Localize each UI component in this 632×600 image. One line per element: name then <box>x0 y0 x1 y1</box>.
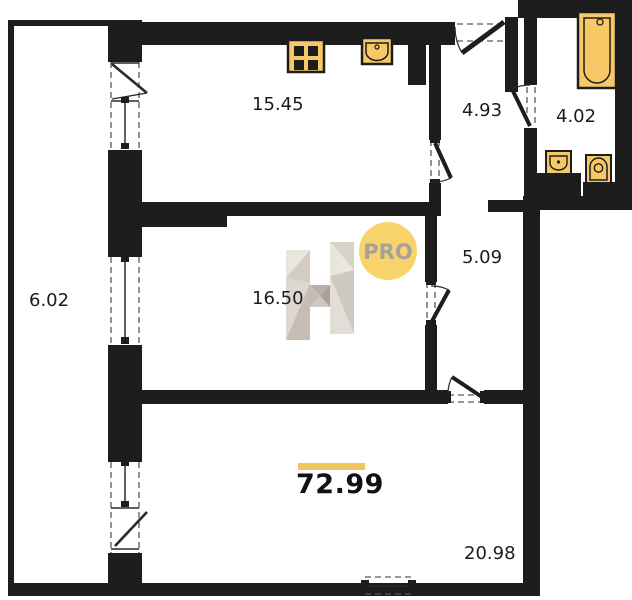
window-icon-middle <box>121 255 129 344</box>
kitchen-door-icon <box>430 136 451 186</box>
stove-icon <box>288 40 324 72</box>
pro-badge: PRO <box>359 222 417 280</box>
room-door-icon <box>426 278 449 327</box>
room-label-kitchen: 15.45 <box>252 96 304 114</box>
pro-badge-label: PRO <box>363 240 412 264</box>
bathtub-icon <box>578 12 616 88</box>
floor-plan: PRO 15.45 4.93 4.02 6.02 16.50 5.09 20.9… <box>0 0 632 600</box>
window-icon-top <box>111 63 147 149</box>
room-label-room: 16.50 <box>252 290 304 308</box>
living-room-door-icon <box>442 377 489 403</box>
room-label-corridor: 5.09 <box>462 249 502 267</box>
entrance-door-icon <box>455 22 504 53</box>
washbasin-icon <box>546 151 571 174</box>
floor-plan-drawing: PRO <box>0 0 632 600</box>
window-icons <box>111 63 416 591</box>
sink-icon <box>362 38 392 64</box>
room-label-balcony: 6.02 <box>29 292 69 310</box>
window-icon-bottom <box>111 460 147 549</box>
room-label-hallway: 4.93 <box>462 102 502 120</box>
room-label-living: 20.98 <box>464 545 516 563</box>
total-area-label: 72.99 <box>296 471 384 498</box>
toilet-icon <box>586 155 611 183</box>
room-label-bathroom: 4.02 <box>556 108 596 126</box>
